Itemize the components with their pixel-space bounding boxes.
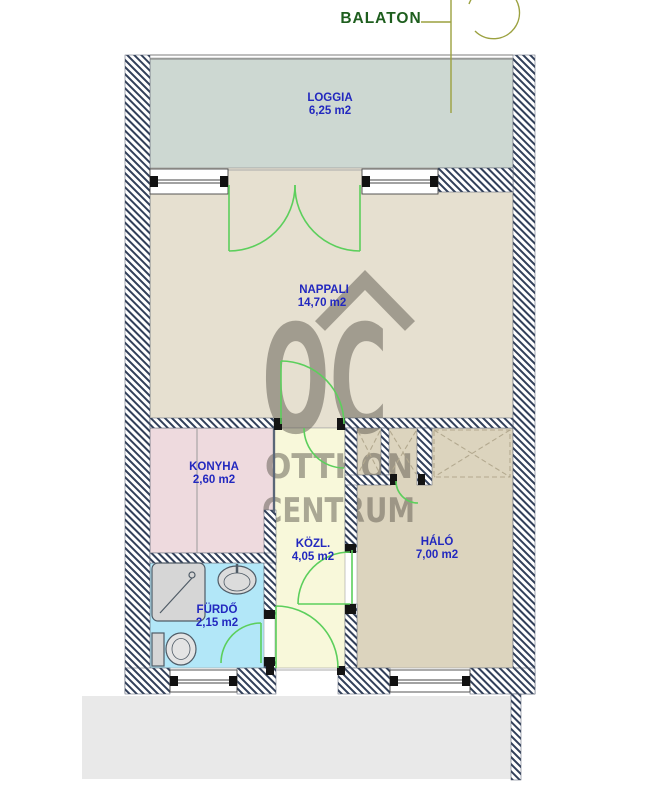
wall-kozl-halo-upper xyxy=(345,428,357,552)
wall-left xyxy=(125,55,150,693)
gray-band xyxy=(82,696,521,779)
jamb xyxy=(264,610,275,619)
label-loggia-name: LOGGIA xyxy=(307,92,352,104)
wall-bottom-1 xyxy=(125,668,170,694)
wall-konyha-furdo xyxy=(150,553,276,563)
room-konyha-floor xyxy=(150,428,273,553)
wall-nappali-halo xyxy=(345,418,513,428)
label-konyha-area: 2,60 m2 xyxy=(193,474,235,486)
jamb xyxy=(345,604,356,614)
label-nappali-name: NAPPALI xyxy=(299,284,349,296)
label-furdo-name: FÜRDŐ xyxy=(197,603,238,616)
window-loggia-left xyxy=(150,169,228,194)
wall-nappali-konyha xyxy=(150,418,274,428)
toilet-icon xyxy=(152,633,196,666)
label-loggia-area: 6,25 m2 xyxy=(309,105,351,117)
label-konyha-name: KONYHA xyxy=(189,461,239,473)
wall-right xyxy=(513,55,535,694)
label-furdo-area: 2,15 m2 xyxy=(196,617,238,629)
label-kozl-name: KÖZL. xyxy=(296,537,331,550)
wall-under-closet-a xyxy=(345,475,391,485)
window-loggia-right xyxy=(362,169,438,194)
window-furdo-bottom xyxy=(170,670,237,692)
label-halo-area: 7,00 m2 xyxy=(416,549,458,561)
floor-plan-svg: OC OTTHON CENTRUM xyxy=(0,0,654,800)
window-halo-bottom xyxy=(390,670,470,692)
jamb xyxy=(266,666,274,675)
jamb xyxy=(264,657,275,666)
label-halo-name: HÁLÓ xyxy=(421,535,454,548)
watermark-line2: CENTRUM xyxy=(262,491,415,531)
wall-closet-a-b xyxy=(381,428,389,475)
jamb xyxy=(418,474,425,485)
wall-bottom-4 xyxy=(470,668,535,694)
label-kozl-area: 4,05 m2 xyxy=(292,551,334,563)
wall-stub-bottom-right xyxy=(511,694,521,780)
plan-title: BALATON xyxy=(340,10,421,27)
floorplan-canvas: OC OTTHON CENTRUM xyxy=(0,0,654,800)
label-nappali-area: 14,70 m2 xyxy=(298,297,347,309)
wall-under-loggia-right xyxy=(438,168,513,192)
wall-bottom-3 xyxy=(338,668,390,694)
wall-furdo-kozl-upper xyxy=(264,510,276,618)
